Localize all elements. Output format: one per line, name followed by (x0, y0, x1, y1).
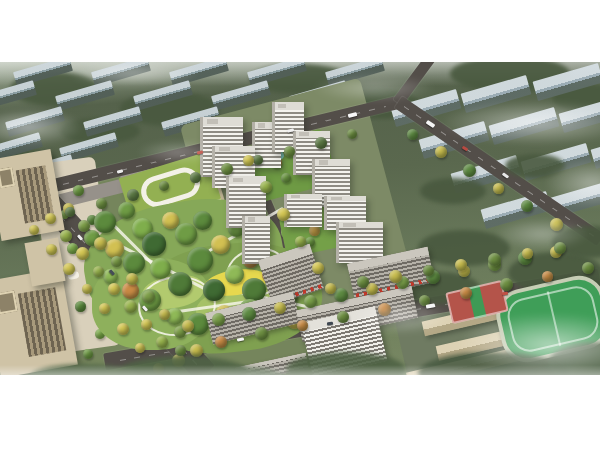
street-tree (190, 172, 201, 183)
street-tree (315, 137, 327, 149)
street-tree (582, 262, 594, 274)
office-tower-roof (24, 237, 65, 286)
street-tree (124, 300, 137, 313)
tree-mass (420, 178, 486, 204)
street-tree (463, 164, 476, 177)
street-tree (488, 253, 501, 266)
park-tree (123, 252, 145, 274)
cloud (136, 140, 220, 164)
street-tree (312, 262, 324, 274)
cloud (544, 158, 600, 208)
street-tree (117, 323, 129, 335)
street-tree (542, 271, 553, 282)
park-tree (142, 232, 166, 256)
cloud (66, 62, 200, 88)
park-tree (187, 247, 213, 273)
street-tree (126, 273, 138, 285)
park-tree (150, 258, 171, 279)
street-tree (215, 336, 227, 348)
cloud (0, 108, 84, 146)
street-tree (284, 146, 295, 157)
park-tree (193, 211, 212, 230)
aerial-rendering (0, 62, 600, 375)
street-tree (108, 283, 120, 295)
park-tree (211, 235, 230, 254)
street-tree (500, 278, 513, 291)
street-tree (325, 283, 336, 294)
street-tree (295, 236, 306, 247)
cloud (494, 218, 590, 250)
park-tree (225, 265, 244, 284)
street-tree (78, 220, 90, 232)
street-tree (297, 320, 308, 331)
cloud (352, 300, 450, 334)
street-tree (141, 319, 152, 330)
street-tree (253, 155, 263, 165)
street-tree (60, 230, 72, 242)
cloud (438, 100, 600, 146)
park-tree (94, 211, 116, 233)
plaza-tree (73, 185, 84, 196)
street-tree (347, 129, 357, 139)
street-tree (242, 307, 256, 321)
street-tree (304, 295, 317, 308)
park-tree (203, 279, 225, 301)
street-tree (243, 155, 254, 166)
street-tree (94, 237, 107, 250)
street-tree (29, 225, 39, 235)
street-tree (221, 163, 233, 175)
street-tree (111, 256, 122, 267)
plaza-tree (83, 349, 93, 359)
residential-tower (284, 194, 322, 227)
street-tree (175, 345, 186, 356)
street-tree (190, 344, 203, 357)
street-tree (260, 181, 272, 193)
street-tree (159, 181, 169, 191)
park-tree (175, 223, 197, 245)
park-tree (105, 239, 124, 258)
vehicle (327, 321, 333, 325)
plaza-tree (75, 301, 86, 312)
podium-tree (281, 173, 291, 183)
street-tree (407, 129, 418, 140)
park-tree (168, 272, 192, 296)
vehicle (236, 337, 243, 341)
street-tree (127, 189, 139, 201)
street-tree (182, 320, 194, 332)
street-tree (93, 266, 104, 277)
street-tree (159, 309, 170, 320)
street-tree (435, 146, 447, 158)
vehicle (502, 291, 508, 295)
street-tree (460, 287, 472, 299)
street-tree (274, 302, 286, 314)
street-tree (142, 290, 155, 303)
cloud (312, 74, 436, 102)
park-tree (118, 202, 135, 219)
street-tree (65, 207, 75, 217)
park-tree (162, 212, 179, 229)
bottom-haze-overlay (0, 365, 600, 375)
street-tree (45, 213, 56, 224)
street-tree (277, 208, 290, 221)
street-tree (96, 198, 107, 209)
street-tree (493, 183, 504, 194)
street-tree (76, 247, 89, 260)
page-background: { "meta": { "title": "Residential develo… (0, 0, 600, 450)
